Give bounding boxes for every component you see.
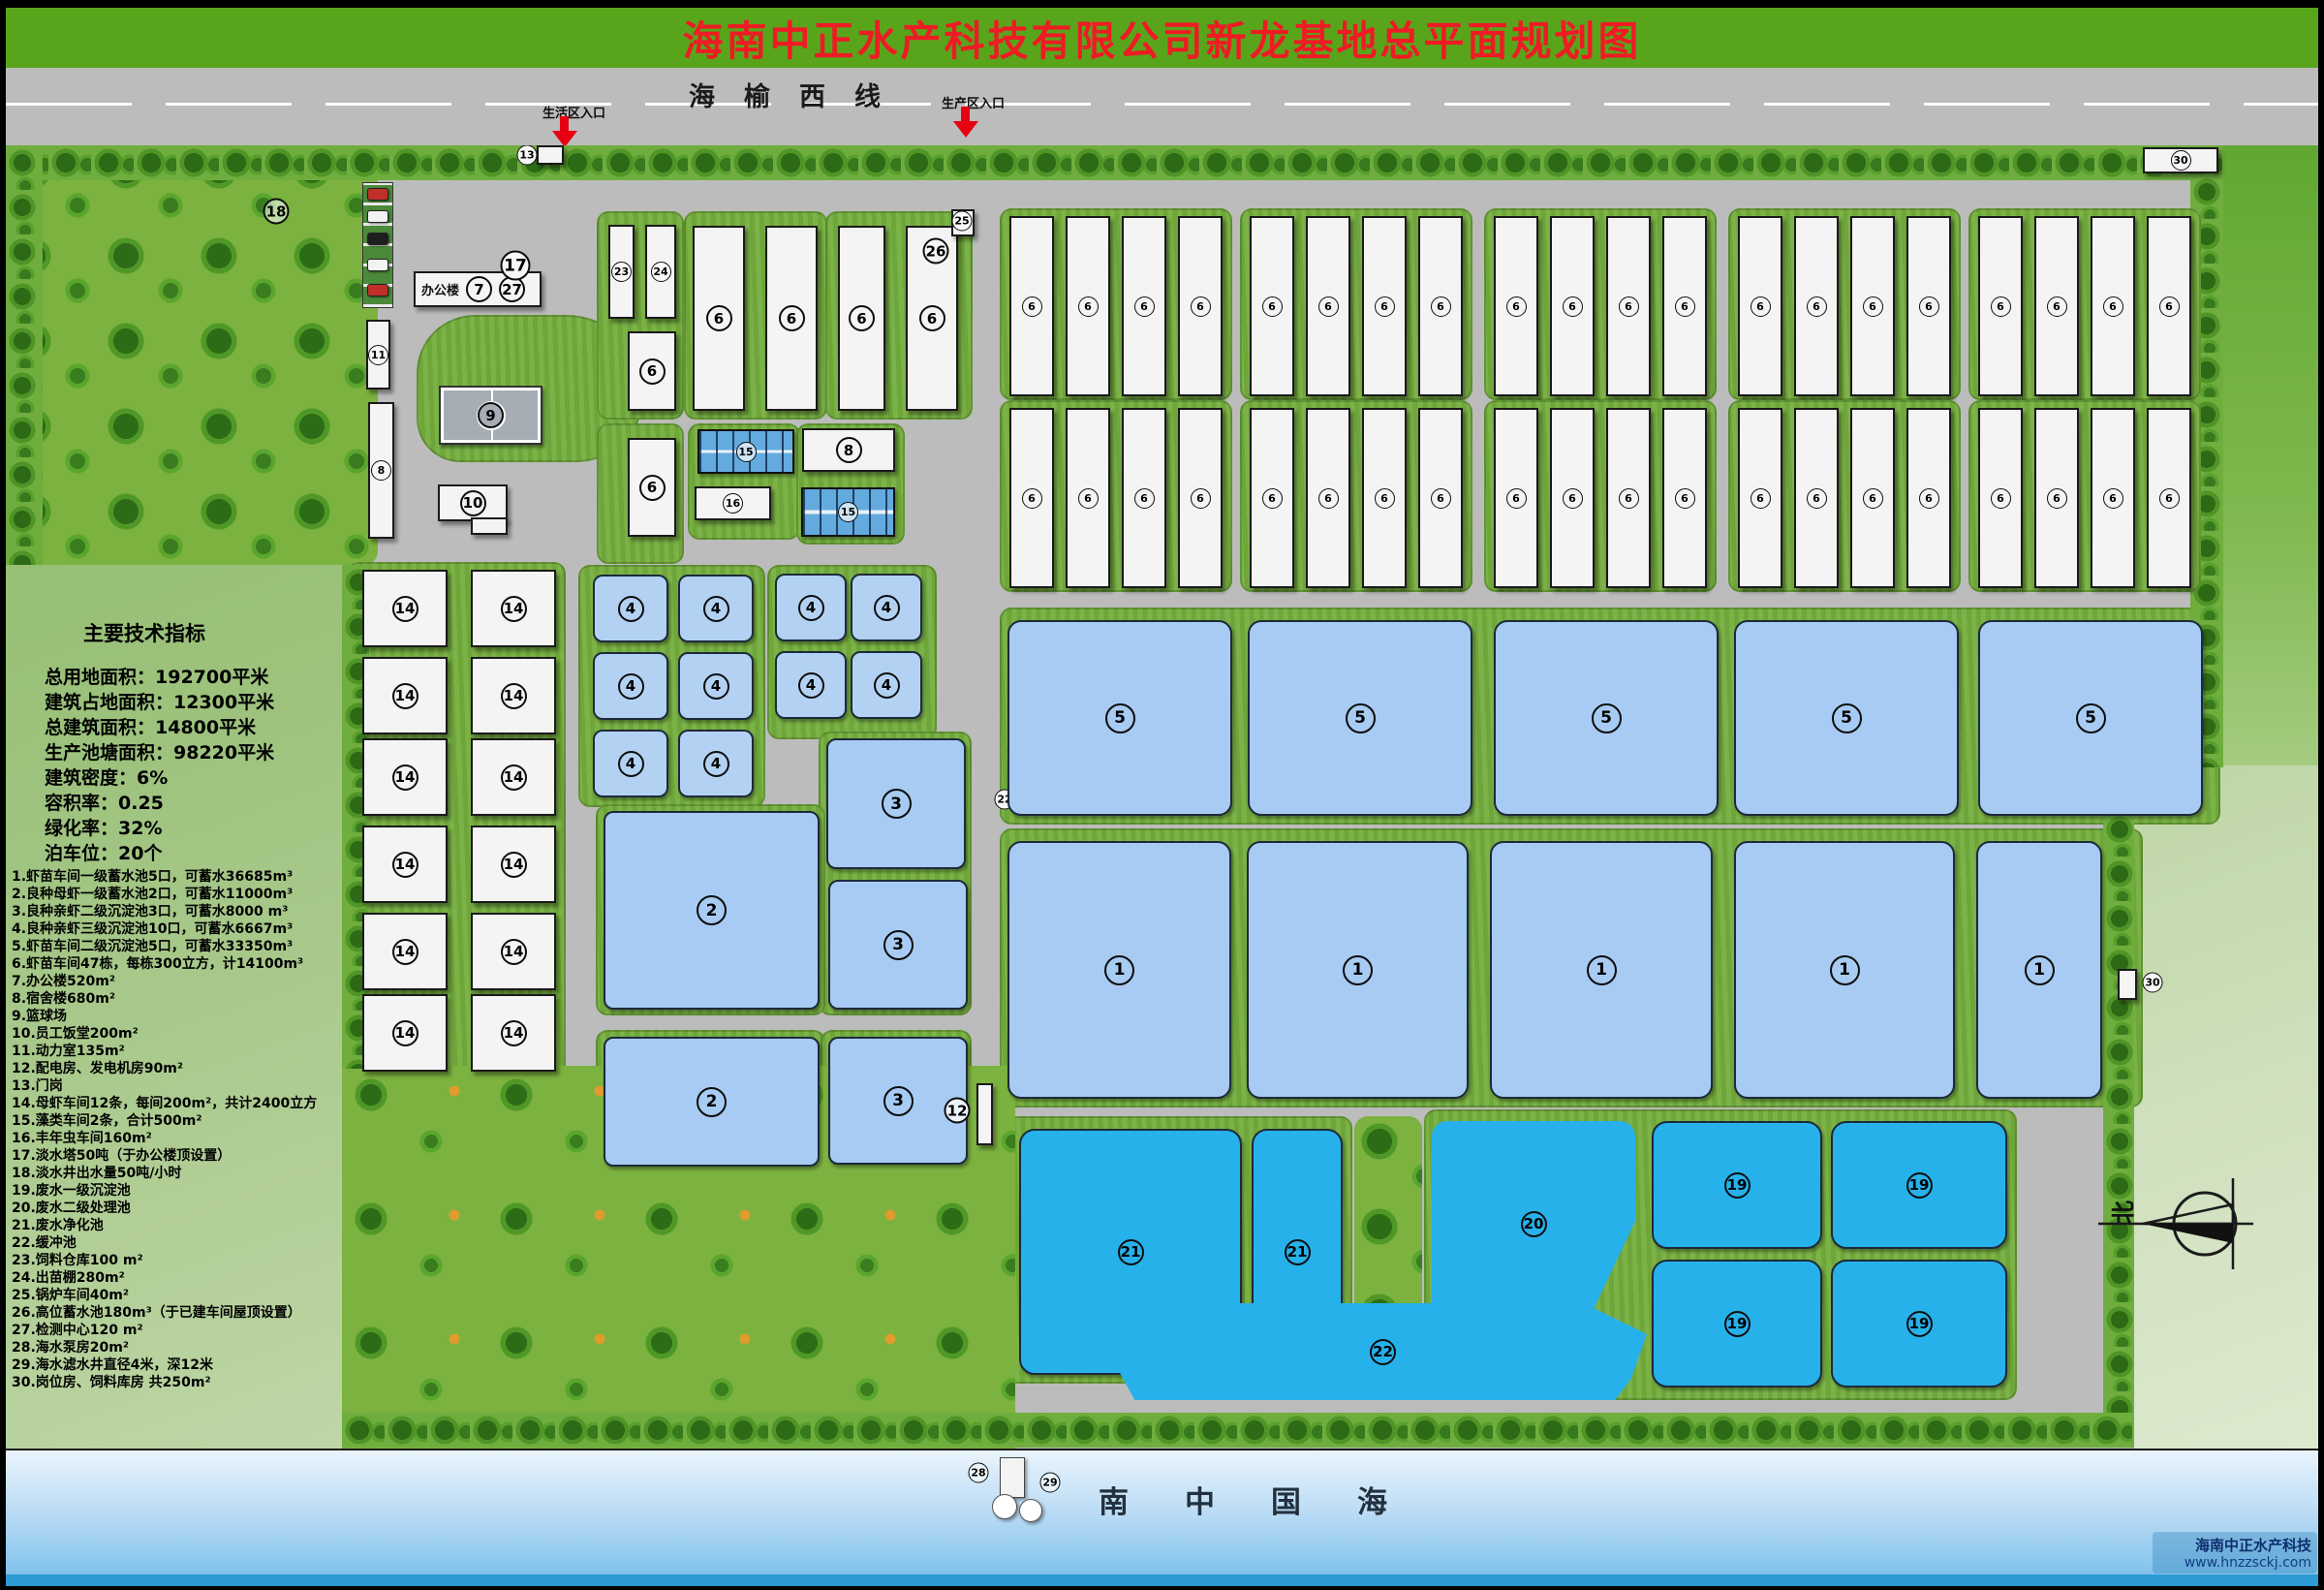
- circle-9-basketball: 9: [478, 402, 504, 428]
- legend-item: 27.检测中心120 m²: [12, 1322, 346, 1339]
- workshop-6-building: 6: [2147, 408, 2191, 588]
- workshop-block: 6666: [1240, 400, 1472, 592]
- pond-1: 1: [1007, 841, 1231, 1099]
- office-label: 办公楼: [421, 280, 459, 298]
- pond-1: 1: [1976, 841, 2102, 1099]
- legend-item: 6.虾苗车间47栋，每栋300立方，计14100m³: [12, 955, 346, 973]
- workshop-6-building: 6: [1906, 216, 1951, 396]
- circle-12-power-dist: 12: [945, 1098, 971, 1124]
- workshop-6-building: 6: [2147, 216, 2191, 396]
- legend-item: 20.废水二级处理池: [12, 1200, 346, 1217]
- circle-6-label: 6: [779, 305, 805, 331]
- workshop-6-tall-c: 6: [838, 226, 885, 411]
- circle-6-label: 6: [1191, 296, 1211, 317]
- circle-19-label: 19: [1724, 1172, 1751, 1199]
- indicator-line: 建筑占地面积：12300平米: [45, 690, 364, 715]
- circle-21: 21: [1118, 1239, 1144, 1265]
- workshop-block: 6666: [1728, 400, 1961, 592]
- compass: 北: [2089, 1172, 2263, 1279]
- circle-6-label: 6: [1134, 488, 1155, 509]
- circle-6-label: 6: [1022, 296, 1042, 317]
- workshop-block: 6666: [1000, 400, 1232, 592]
- mother-shrimp-building: 14: [471, 738, 556, 816]
- workshop-6-building: 6: [1418, 216, 1463, 396]
- circle-6-label: 6: [1619, 296, 1639, 317]
- circle-1-label: 1: [2025, 955, 2055, 985]
- circle-29-sea-well: 29: [1040, 1473, 1061, 1493]
- circle-5-label: 5: [1346, 703, 1376, 733]
- pond-4: 4: [678, 652, 754, 720]
- circle-1-label: 1: [1587, 955, 1617, 985]
- legend-item: 8.宿舍楼680m²: [12, 990, 346, 1008]
- circle-4-label: 4: [874, 595, 900, 621]
- circle-21: 21: [1285, 1239, 1311, 1265]
- seedling-shed-building: 24: [645, 225, 676, 319]
- legend-item: 30.岗位房、饲料库房 共250m²: [12, 1374, 346, 1391]
- workshop-block: 6666: [1728, 208, 1961, 400]
- workshop-6-building: 6: [1550, 216, 1595, 396]
- legend-item: 26.高位蓄水池180m³（于已建车间屋顶设置）: [12, 1304, 346, 1322]
- forest-park: [8, 145, 378, 565]
- pond-4: 4: [593, 730, 668, 797]
- workshop-block: 6666: [1240, 208, 1472, 400]
- workshop-6-building: 6: [1850, 216, 1895, 396]
- indicators-title: 主要技术指标: [83, 618, 364, 647]
- pond-1: 1: [1247, 841, 1469, 1099]
- legend-item: 10.员工饭堂200m²: [12, 1025, 346, 1043]
- circle-4-label: 4: [618, 596, 644, 622]
- buffer-pond-22: 22: [1119, 1303, 1647, 1400]
- circle-14-label: 14: [501, 764, 527, 791]
- sea-pump-house: [1000, 1457, 1025, 1498]
- prod-entrance-arrow: [961, 107, 970, 121]
- circle-8-mid-dorm: 8: [836, 437, 862, 463]
- workshop-block: 6666: [1484, 208, 1717, 400]
- circle-6-label: 6: [1675, 296, 1695, 317]
- pond-3-b: 3: [828, 880, 968, 1010]
- circle-14-label: 14: [392, 939, 418, 965]
- circle-14-label: 14: [392, 596, 418, 622]
- legend-item: 5.虾苗车间二级沉淀池5口，可蓄水33350m³: [12, 938, 346, 955]
- circle-14-label: 14: [501, 683, 527, 709]
- circle-6-label: 6: [1318, 488, 1339, 509]
- circle-6-label: 6: [1751, 488, 1771, 509]
- circle-19-label: 19: [1906, 1311, 1933, 1337]
- mother-shrimp-building: 14: [362, 738, 448, 816]
- circle-6-label: 6: [1375, 488, 1395, 509]
- circle-4-label: 4: [874, 672, 900, 699]
- life-entrance-label: 生活区入口: [542, 103, 605, 121]
- workshop-6-building: 6: [1978, 408, 2023, 588]
- outside-land-right: [2221, 145, 2318, 765]
- mother-shrimp-building: 14: [471, 994, 556, 1072]
- indicator-line: 总建筑面积：14800平米: [45, 715, 364, 740]
- circle-26-high-tank: 26: [923, 238, 949, 265]
- workshop-6-tall-a: 6: [693, 226, 745, 411]
- compass-needle-fill: [2143, 1224, 2233, 1243]
- legend-item: 14.母虾车间12条，每间200m²，共计2400立方: [12, 1095, 346, 1112]
- pond-5: 5: [1734, 620, 1959, 816]
- highway: 海榆西线: [6, 68, 2318, 145]
- technical-indicators: 主要技术指标 总用地面积：192700平米建筑占地面积：12300平米总建筑面积…: [45, 618, 364, 866]
- workshop-6-building: 6: [1738, 408, 1782, 588]
- legend-item: 3.良种亲虾二级沉淀池3口，可蓄水8000 m³: [12, 903, 346, 920]
- tree-col-right-lower: [2103, 767, 2134, 1413]
- legend-item: 17.淡水塔50吨（于办公楼顶设置）: [12, 1147, 346, 1165]
- workshop-6-small: 6: [628, 331, 676, 411]
- legend-item: 12.配电房、发电机房90m²: [12, 1060, 346, 1077]
- indicator-line: 生产池塘面积：98220平米: [45, 740, 364, 765]
- circle-6-label: 6: [1262, 488, 1283, 509]
- pond-4: 4: [593, 652, 668, 720]
- workshop-6-building: 6: [1066, 408, 1110, 588]
- indicator-line: 容积率：0.25: [45, 791, 364, 816]
- circle-14-label: 14: [501, 596, 527, 622]
- circle-23-feed: 23: [611, 262, 632, 282]
- circle-4-label: 4: [798, 595, 824, 621]
- workshop-6-building: 6: [1978, 216, 2023, 396]
- canteen-wing: [471, 517, 508, 535]
- pond-4: 4: [678, 575, 754, 642]
- mother-shrimp-building: 14: [362, 826, 448, 903]
- circle-20: 20: [1521, 1211, 1547, 1237]
- circle-6-label: 6: [2047, 296, 2067, 317]
- watermark: 海南中正水产科技 www.hnzzsckj.com: [2153, 1532, 2317, 1574]
- circle-1-label: 1: [1104, 955, 1134, 985]
- circle-15-algae: 15: [736, 442, 757, 462]
- sea-filter-well-b: [1019, 1499, 1042, 1522]
- workshop-6-building: 6: [1494, 408, 1538, 588]
- workshop-6-building: 6: [1662, 216, 1707, 396]
- compass-needle-outline: [2143, 1204, 2233, 1224]
- canteen-building: 10: [438, 484, 508, 521]
- workshop-6-building: 6: [1738, 216, 1782, 396]
- mother-shrimp-building: 14: [362, 657, 448, 734]
- watermark-company: 海南中正水产科技: [2158, 1535, 2311, 1555]
- workshop-6-building: 6: [1606, 216, 1651, 396]
- circle-14-label: 14: [392, 764, 418, 791]
- pond-19: 19: [1831, 1260, 2007, 1387]
- workshop-6-building: 6: [1906, 408, 1951, 588]
- workshop-6-building: 6: [1418, 408, 1463, 588]
- circle-5-label: 5: [1105, 703, 1135, 733]
- circle-5-label: 5: [1832, 703, 1862, 733]
- pond-1: 1: [1734, 841, 1955, 1099]
- circle-1-label: 1: [1343, 955, 1373, 985]
- circle-14-label: 14: [392, 683, 418, 709]
- circle-16-brine-worm: 16: [723, 493, 743, 514]
- site-area: 13 办公楼 7 27 17 11 8 9 10 23 24 6: [6, 145, 2318, 1449]
- compass-north-label: 北: [2110, 1200, 2137, 1224]
- circle-6-label: 6: [849, 305, 875, 331]
- algae-pond-grid-a: 15: [697, 429, 794, 474]
- legend-item: 7.办公楼520m²: [12, 973, 346, 990]
- circle-6-label: 6: [1506, 296, 1527, 317]
- legend-item: 1.虾苗车间一级蓄水池5口，可蓄水36685m³: [12, 868, 346, 886]
- power-room-building: 11: [366, 320, 390, 390]
- pond-19: 19: [1652, 1260, 1822, 1387]
- workshop-block: 6666: [1484, 400, 1717, 592]
- car-red: [367, 188, 388, 201]
- circle-6-label: 6: [639, 359, 666, 385]
- sea-name: 南中国海: [1099, 1478, 1443, 1521]
- circle-5-label: 5: [2076, 703, 2106, 733]
- indicator-line: 绿化率：32%: [45, 816, 364, 841]
- legend-item: 19.废水一级沉淀池: [12, 1182, 346, 1200]
- pond-19: 19: [1831, 1121, 2007, 1249]
- circle-6-label: 6: [1863, 488, 1883, 509]
- workshop-6-building: 6: [1009, 216, 1054, 396]
- workshop-6-building: 6: [1250, 216, 1294, 396]
- brine-worm-building: 16: [695, 486, 771, 520]
- circle-30-post-east: 30: [2143, 973, 2163, 993]
- feed-warehouse-building: 23: [608, 225, 635, 319]
- circle-6-label: 6: [2047, 488, 2067, 509]
- workshop-block: 6666: [1968, 208, 2201, 400]
- circle-8-dormitory: 8: [371, 460, 391, 481]
- dormitory-building: 8: [368, 402, 394, 539]
- circle-6-label: 6: [1262, 296, 1283, 317]
- circle-6-label: 6: [1751, 296, 1771, 317]
- mother-shrimp-building: 14: [471, 570, 556, 647]
- circle-4-label: 4: [703, 596, 729, 622]
- car-white-2: [367, 259, 388, 271]
- plan-title: 海南中正水产科技有限公司新龙基地总平面规划图: [682, 9, 1641, 68]
- parking-strip: [362, 182, 393, 308]
- circle-3: 3: [883, 930, 914, 960]
- workshop-6-building: 6: [1009, 408, 1054, 588]
- car-black: [367, 233, 388, 245]
- mother-shrimp-building: 14: [362, 913, 448, 990]
- circle-3: 3: [882, 789, 912, 819]
- circle-14-label: 14: [501, 1020, 527, 1046]
- circle-24-seedling: 24: [651, 262, 671, 282]
- circle-6-label: 6: [2103, 296, 2123, 317]
- pond-4: 4: [851, 651, 922, 719]
- circle-6-label: 6: [919, 305, 945, 331]
- circle-14-label: 14: [501, 939, 527, 965]
- legend-item: 18.淡水井出水量50吨/小时: [12, 1165, 346, 1182]
- circle-6-label: 6: [1431, 296, 1451, 317]
- workshop-6-lower: 6: [628, 438, 676, 537]
- highway-name: 海榆西线: [689, 76, 910, 113]
- workshop-6-building: 6: [1122, 216, 1166, 396]
- master-plan-canvas: 海南中正水产科技有限公司新龙基地总平面规划图 海榆西线 生活区入口 生产区入口: [0, 0, 2324, 1590]
- circle-4-label: 4: [618, 673, 644, 700]
- circle-6-label: 6: [1078, 296, 1099, 317]
- workshop-6-building: 6: [2091, 216, 2135, 396]
- indicators-lines: 总用地面积：192700平米建筑占地面积：12300平米总建筑面积：14800平…: [45, 665, 364, 866]
- pond-4: 4: [851, 574, 922, 641]
- legend-item: 15.藻类车间2条，合计500m²: [12, 1112, 346, 1130]
- circle-6-label: 6: [1863, 296, 1883, 317]
- circle-5-label: 5: [1592, 703, 1622, 733]
- pond-4: 4: [775, 651, 847, 719]
- workshop-6-tall-b: 6: [765, 226, 818, 411]
- circle-6-label: 6: [1506, 488, 1527, 509]
- workshop-block: 6666: [1968, 400, 2201, 592]
- legend-list: 1.虾苗车间一级蓄水池5口，可蓄水36685m³2.良种母虾一级蓄水池2口，可蓄…: [12, 868, 346, 1391]
- circle-6-label: 6: [1619, 488, 1639, 509]
- mother-shrimp-building: 14: [471, 826, 556, 903]
- legend-item: 4.良种亲虾三级沉淀池10口，可蓄水6667m³: [12, 920, 346, 938]
- post-house-building: 30: [2143, 147, 2218, 173]
- legend-item: 21.废水净化池: [12, 1217, 346, 1234]
- pond-5: 5: [1494, 620, 1719, 816]
- circle-6-label: 6: [1807, 488, 1827, 509]
- pond-5: 5: [1007, 620, 1232, 816]
- circle-15-algae-b: 15: [838, 502, 858, 522]
- workshop-6-building: 6: [1178, 408, 1223, 588]
- circle-18-forest-well: 18: [263, 199, 290, 225]
- car-red-2: [367, 284, 388, 296]
- workshop-6-building: 6: [1794, 408, 1839, 588]
- mid-dormitory-building: 8: [802, 428, 895, 472]
- life-entrance-arrow: [560, 116, 569, 131]
- legend-item: 2.良种母虾一级蓄水池2口，可蓄水11000m³: [12, 886, 346, 903]
- circle-6-label: 6: [2159, 296, 2180, 317]
- workshop-6-building: 6: [1306, 216, 1350, 396]
- circle-1-label: 1: [1830, 955, 1860, 985]
- circle-6-label: 6: [1022, 488, 1042, 509]
- workshop-6-building: 6: [1306, 408, 1350, 588]
- circle-2: 2: [697, 895, 727, 925]
- circle-4-label: 4: [703, 751, 729, 777]
- gate-house: [537, 145, 564, 165]
- mother-shrimp-building: 14: [471, 913, 556, 990]
- indicator-line: 泊车位：20个: [45, 841, 364, 866]
- pond-4: 4: [593, 575, 668, 642]
- pond-5: 5: [1978, 620, 2203, 816]
- circle-3: 3: [883, 1086, 914, 1116]
- power-dist-building: [976, 1083, 993, 1145]
- circle-14-label: 14: [392, 852, 418, 878]
- circle-6-label: 6: [1919, 296, 1939, 317]
- legend-item: 9.篮球场: [12, 1008, 346, 1025]
- tree-row-top: [6, 145, 2223, 180]
- circle-17-water-tower: 17: [501, 251, 531, 281]
- workshop-6-building: 6: [1662, 408, 1707, 588]
- circle-6-label: 6: [1563, 488, 1583, 509]
- prod-entrance-arrow-tip: [953, 121, 978, 138]
- circle-6-label: 6: [1991, 296, 2011, 317]
- workshop-6-building: 6: [2091, 408, 2135, 588]
- circle-14-label: 14: [392, 1020, 418, 1046]
- circle-25-boiler: 25: [952, 211, 973, 232]
- workshop-6-building: 6: [1550, 408, 1595, 588]
- circle-4-label: 4: [798, 672, 824, 699]
- tree-col-left: [6, 145, 43, 565]
- pond-3-a: 3: [826, 738, 966, 869]
- legend-item: 25.锅炉车间40m²: [12, 1287, 346, 1304]
- algae-pond-grid-b: 15: [801, 487, 895, 537]
- mother-shrimp-building: 14: [362, 994, 448, 1072]
- circle-6-label: 6: [1318, 296, 1339, 317]
- pond-4: 4: [678, 730, 754, 797]
- circle-6-label: 6: [1991, 488, 2011, 509]
- circle-11-power-room: 11: [368, 345, 388, 365]
- workshop-6-building: 6: [1178, 216, 1223, 396]
- highway-centerline: [6, 103, 2318, 106]
- workshop-6-building: 6: [2034, 408, 2079, 588]
- workshop-6-building: 6: [1494, 216, 1538, 396]
- prod-entrance-label: 生产区入口: [942, 93, 1005, 111]
- indicator-line: 总用地面积：192700平米: [45, 665, 364, 690]
- circle-6-label: 6: [1078, 488, 1099, 509]
- legend-item: 16.丰年虫车间160m²: [12, 1130, 346, 1147]
- workshop-6-building: 6: [1250, 408, 1294, 588]
- circle-6-label: 6: [1134, 296, 1155, 317]
- circle-6-label: 6: [1675, 488, 1695, 509]
- watermark-url: www.hnzzsckj.com: [2158, 1555, 2311, 1571]
- circle-14-label: 14: [501, 852, 527, 878]
- indicator-line: 建筑密度：6%: [45, 765, 364, 791]
- circle-10-canteen: 10: [460, 490, 486, 516]
- pond-2-b: 2: [604, 1037, 820, 1167]
- pond-4: 4: [775, 574, 847, 641]
- car-white: [367, 210, 388, 223]
- circle-4-label: 4: [703, 673, 729, 700]
- legend-item: 13.门岗: [12, 1077, 346, 1095]
- circle-19-label: 19: [1906, 1172, 1933, 1199]
- post-house-building-east: [2118, 969, 2137, 1000]
- pond-19: 19: [1652, 1121, 1822, 1249]
- circle-6-label: 6: [1375, 296, 1395, 317]
- circle-6-label: 6: [1563, 296, 1583, 317]
- legend-item: 22.缓冲池: [12, 1234, 346, 1252]
- legend-item: 24.出苗棚280m²: [12, 1269, 346, 1287]
- legend-item: 11.动力室135m²: [12, 1043, 346, 1060]
- mother-shrimp-building: 14: [471, 657, 556, 734]
- circle-6-label: 6: [639, 475, 666, 501]
- circle-13-gate: 13: [517, 145, 538, 166]
- circle-6-label: 6: [1431, 488, 1451, 509]
- mother-shrimp-building: 14: [362, 570, 448, 647]
- pond-2-a: 2: [604, 811, 820, 1010]
- circle-6-label: 6: [1919, 488, 1939, 509]
- workshop-6-building: 6: [1066, 216, 1110, 396]
- pond-5: 5: [1248, 620, 1472, 816]
- sea-filter-well-a: [992, 1494, 1017, 1519]
- workshop-6-building: 6: [2034, 216, 2079, 396]
- workshop-6-building: 6: [1850, 408, 1895, 588]
- workshop-6-building: 6: [1606, 408, 1651, 588]
- circle-7-office: 7: [466, 276, 492, 302]
- circle-6-label: 6: [1807, 296, 1827, 317]
- circle-19-label: 19: [1724, 1311, 1751, 1337]
- circle-28-sea-pump: 28: [969, 1463, 989, 1483]
- workshop-6-building: 6: [1362, 408, 1407, 588]
- circle-30-post: 30: [2171, 150, 2191, 171]
- pond-1: 1: [1490, 841, 1713, 1099]
- circle-22: 22: [1370, 1339, 1396, 1365]
- workshop-6-building: 6: [1362, 216, 1407, 396]
- workshop-block: 6666: [1000, 208, 1232, 400]
- circle-2: 2: [697, 1087, 727, 1117]
- circle-6-label: 6: [2159, 488, 2180, 509]
- tree-row-bottom: [342, 1413, 2134, 1448]
- circle-6-label: 6: [706, 305, 732, 331]
- basketball-court: 9: [439, 386, 542, 445]
- circle-6-label: 6: [2103, 488, 2123, 509]
- workshop-6-building: 6: [1122, 408, 1166, 588]
- legend-item: 28.海水泵房20m²: [12, 1339, 346, 1356]
- plan-header: 海南中正水产科技有限公司新龙基地总平面规划图: [6, 8, 2318, 68]
- legend-item: 29.海水滤水井直径4米，深12米: [12, 1356, 346, 1374]
- sea-bottom-band: [6, 1574, 2318, 1586]
- sea-area: 28 29 南中国海 海南中正水产科技 www.hnzzsckj.com: [6, 1449, 2318, 1586]
- legend-item: 23.饲料仓库100 m²: [12, 1252, 346, 1269]
